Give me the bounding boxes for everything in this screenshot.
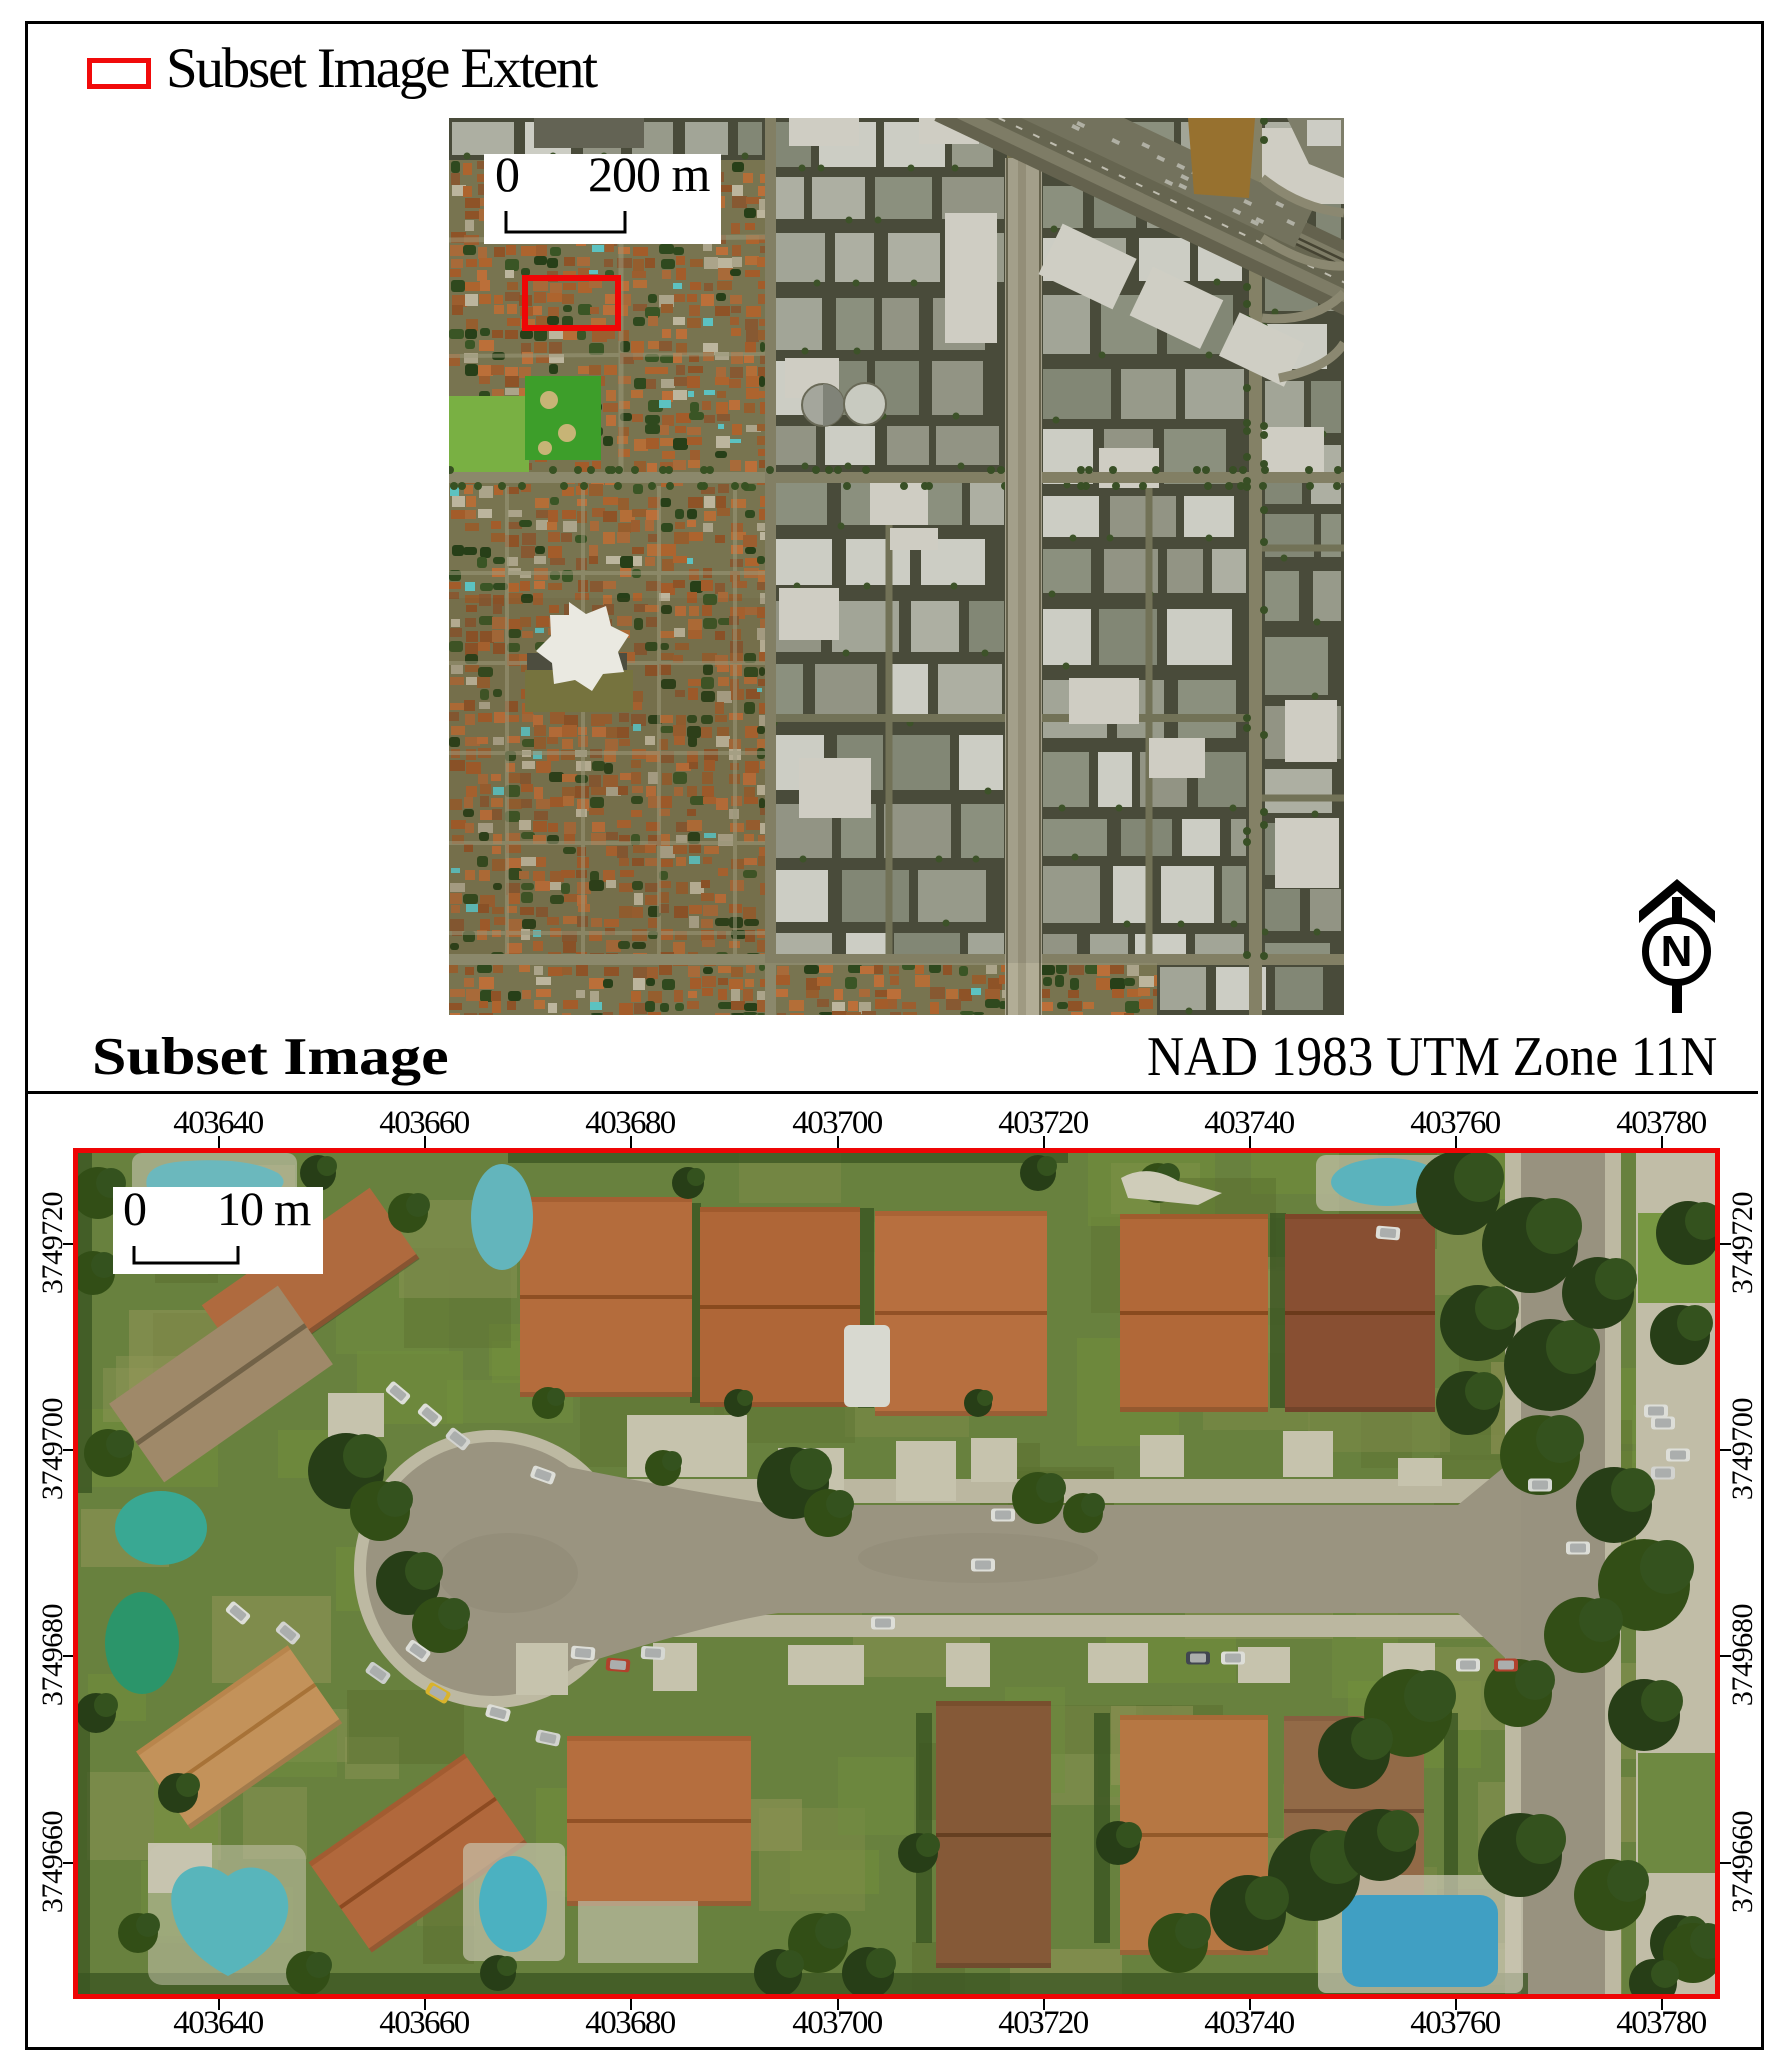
- svg-text:N: N: [1661, 927, 1693, 976]
- svg-text:200 m: 200 m: [588, 146, 711, 202]
- svg-text:0: 0: [495, 146, 520, 202]
- svg-text:0: 0: [123, 1183, 147, 1236]
- svg-text:10 m: 10 m: [217, 1183, 311, 1236]
